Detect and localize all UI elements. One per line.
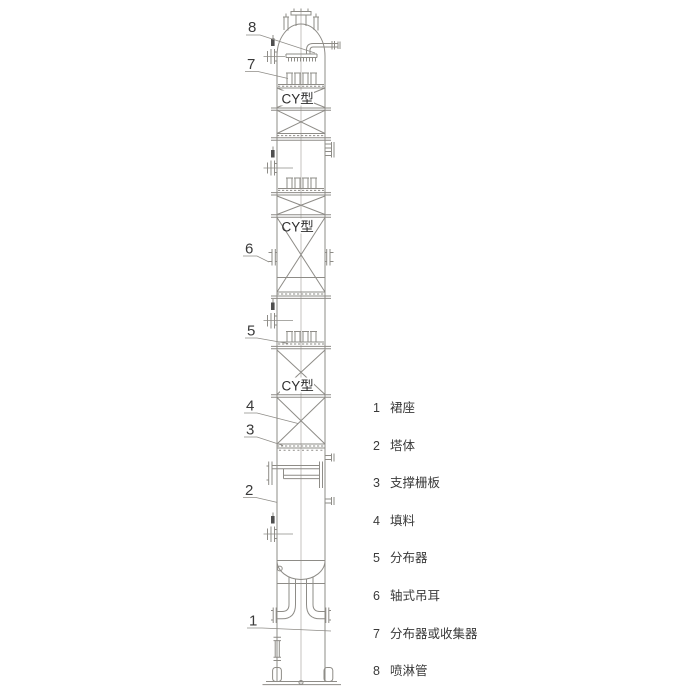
legend-item: 1 裙座	[373, 397, 415, 416]
legend-number: 2	[373, 439, 381, 453]
legend-label: 分布器或收集器	[390, 623, 478, 642]
legend-number: 8	[373, 664, 381, 678]
trunnion-right	[325, 249, 334, 266]
leader-8	[246, 35, 315, 53]
legend-label: 喷淋管	[390, 660, 428, 679]
leader-1	[247, 628, 331, 631]
side-nozzle-lower-2	[325, 497, 334, 505]
callout-number-2: 2	[245, 482, 253, 499]
legend-label: 裙座	[390, 397, 415, 416]
legend-label: 轴式吊耳	[390, 585, 440, 604]
manhole-4	[264, 513, 294, 543]
side-nozzle-lower-1	[325, 454, 334, 462]
feed-pipe	[267, 462, 323, 489]
legend-label: 分布器	[390, 547, 428, 566]
legend-label: 塔体	[390, 435, 415, 454]
trunnion-left	[269, 249, 278, 266]
side-nozzle-upper-1	[325, 142, 334, 150]
legend-item: 4 填料	[373, 510, 415, 529]
legend-number: 1	[373, 401, 381, 415]
legend-number: 3	[373, 476, 381, 490]
callout-number-7: 7	[247, 56, 255, 73]
legend-item: 6 轴式吊耳	[373, 585, 440, 604]
packing-type-label: CY型	[282, 91, 314, 106]
column-diagram: CY型 CY型	[0, 0, 700, 694]
packing-type-label: CY型	[282, 378, 314, 393]
callout-number-1: 1	[249, 613, 257, 630]
callout-number-3: 3	[246, 422, 254, 439]
manhole-2	[264, 147, 294, 176]
legend-label: 填料	[390, 510, 415, 529]
callout-number-5: 5	[247, 323, 255, 340]
side-nozzle-upper-2	[325, 150, 334, 158]
legend-number: 7	[373, 627, 381, 641]
spray-pipe	[286, 41, 340, 62]
legend-number: 6	[373, 589, 381, 603]
skirt	[263, 637, 342, 684]
callout-number-8: 8	[248, 19, 256, 36]
callout-numbers: 8 7 6 5 4 3 2 1	[245, 19, 257, 630]
legend-item: 2 塔体	[373, 435, 415, 454]
callout-number-6: 6	[245, 241, 253, 258]
legend-item: 8 喷淋管	[373, 660, 428, 679]
packed-column-drawing: CY型 CY型	[0, 0, 700, 694]
legend-item: 5 分布器	[373, 547, 428, 566]
legend-label: 支撑栅板	[390, 472, 440, 491]
manhole-3	[264, 299, 294, 329]
legend-item: 3 支撑栅板	[373, 472, 440, 491]
callout-number-4: 4	[246, 398, 254, 415]
legend-number: 4	[373, 514, 381, 528]
legend-item: 7 分布器或收集器	[373, 623, 478, 642]
legend-number: 5	[373, 551, 381, 565]
packing-type-label: CY型	[282, 219, 314, 234]
